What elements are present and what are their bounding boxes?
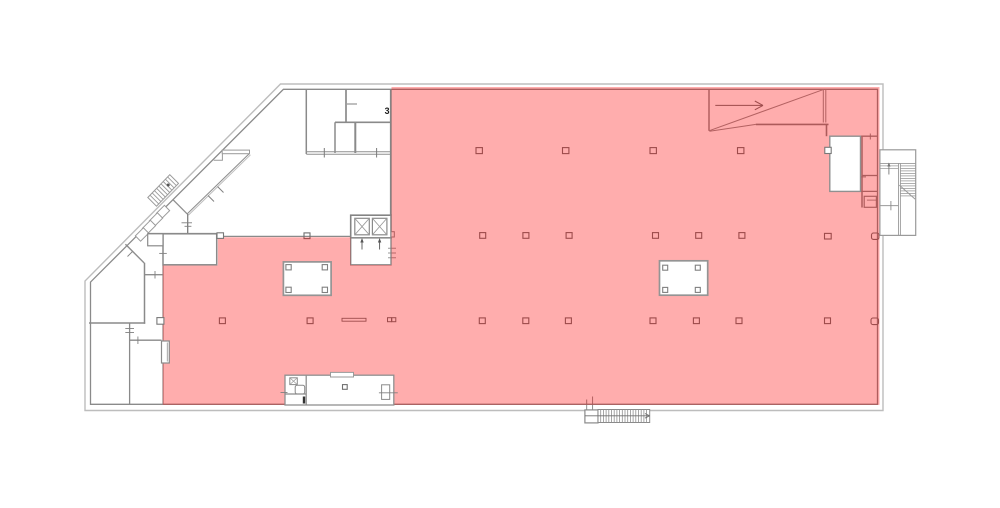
svg-text:3: 3 [385, 106, 390, 116]
